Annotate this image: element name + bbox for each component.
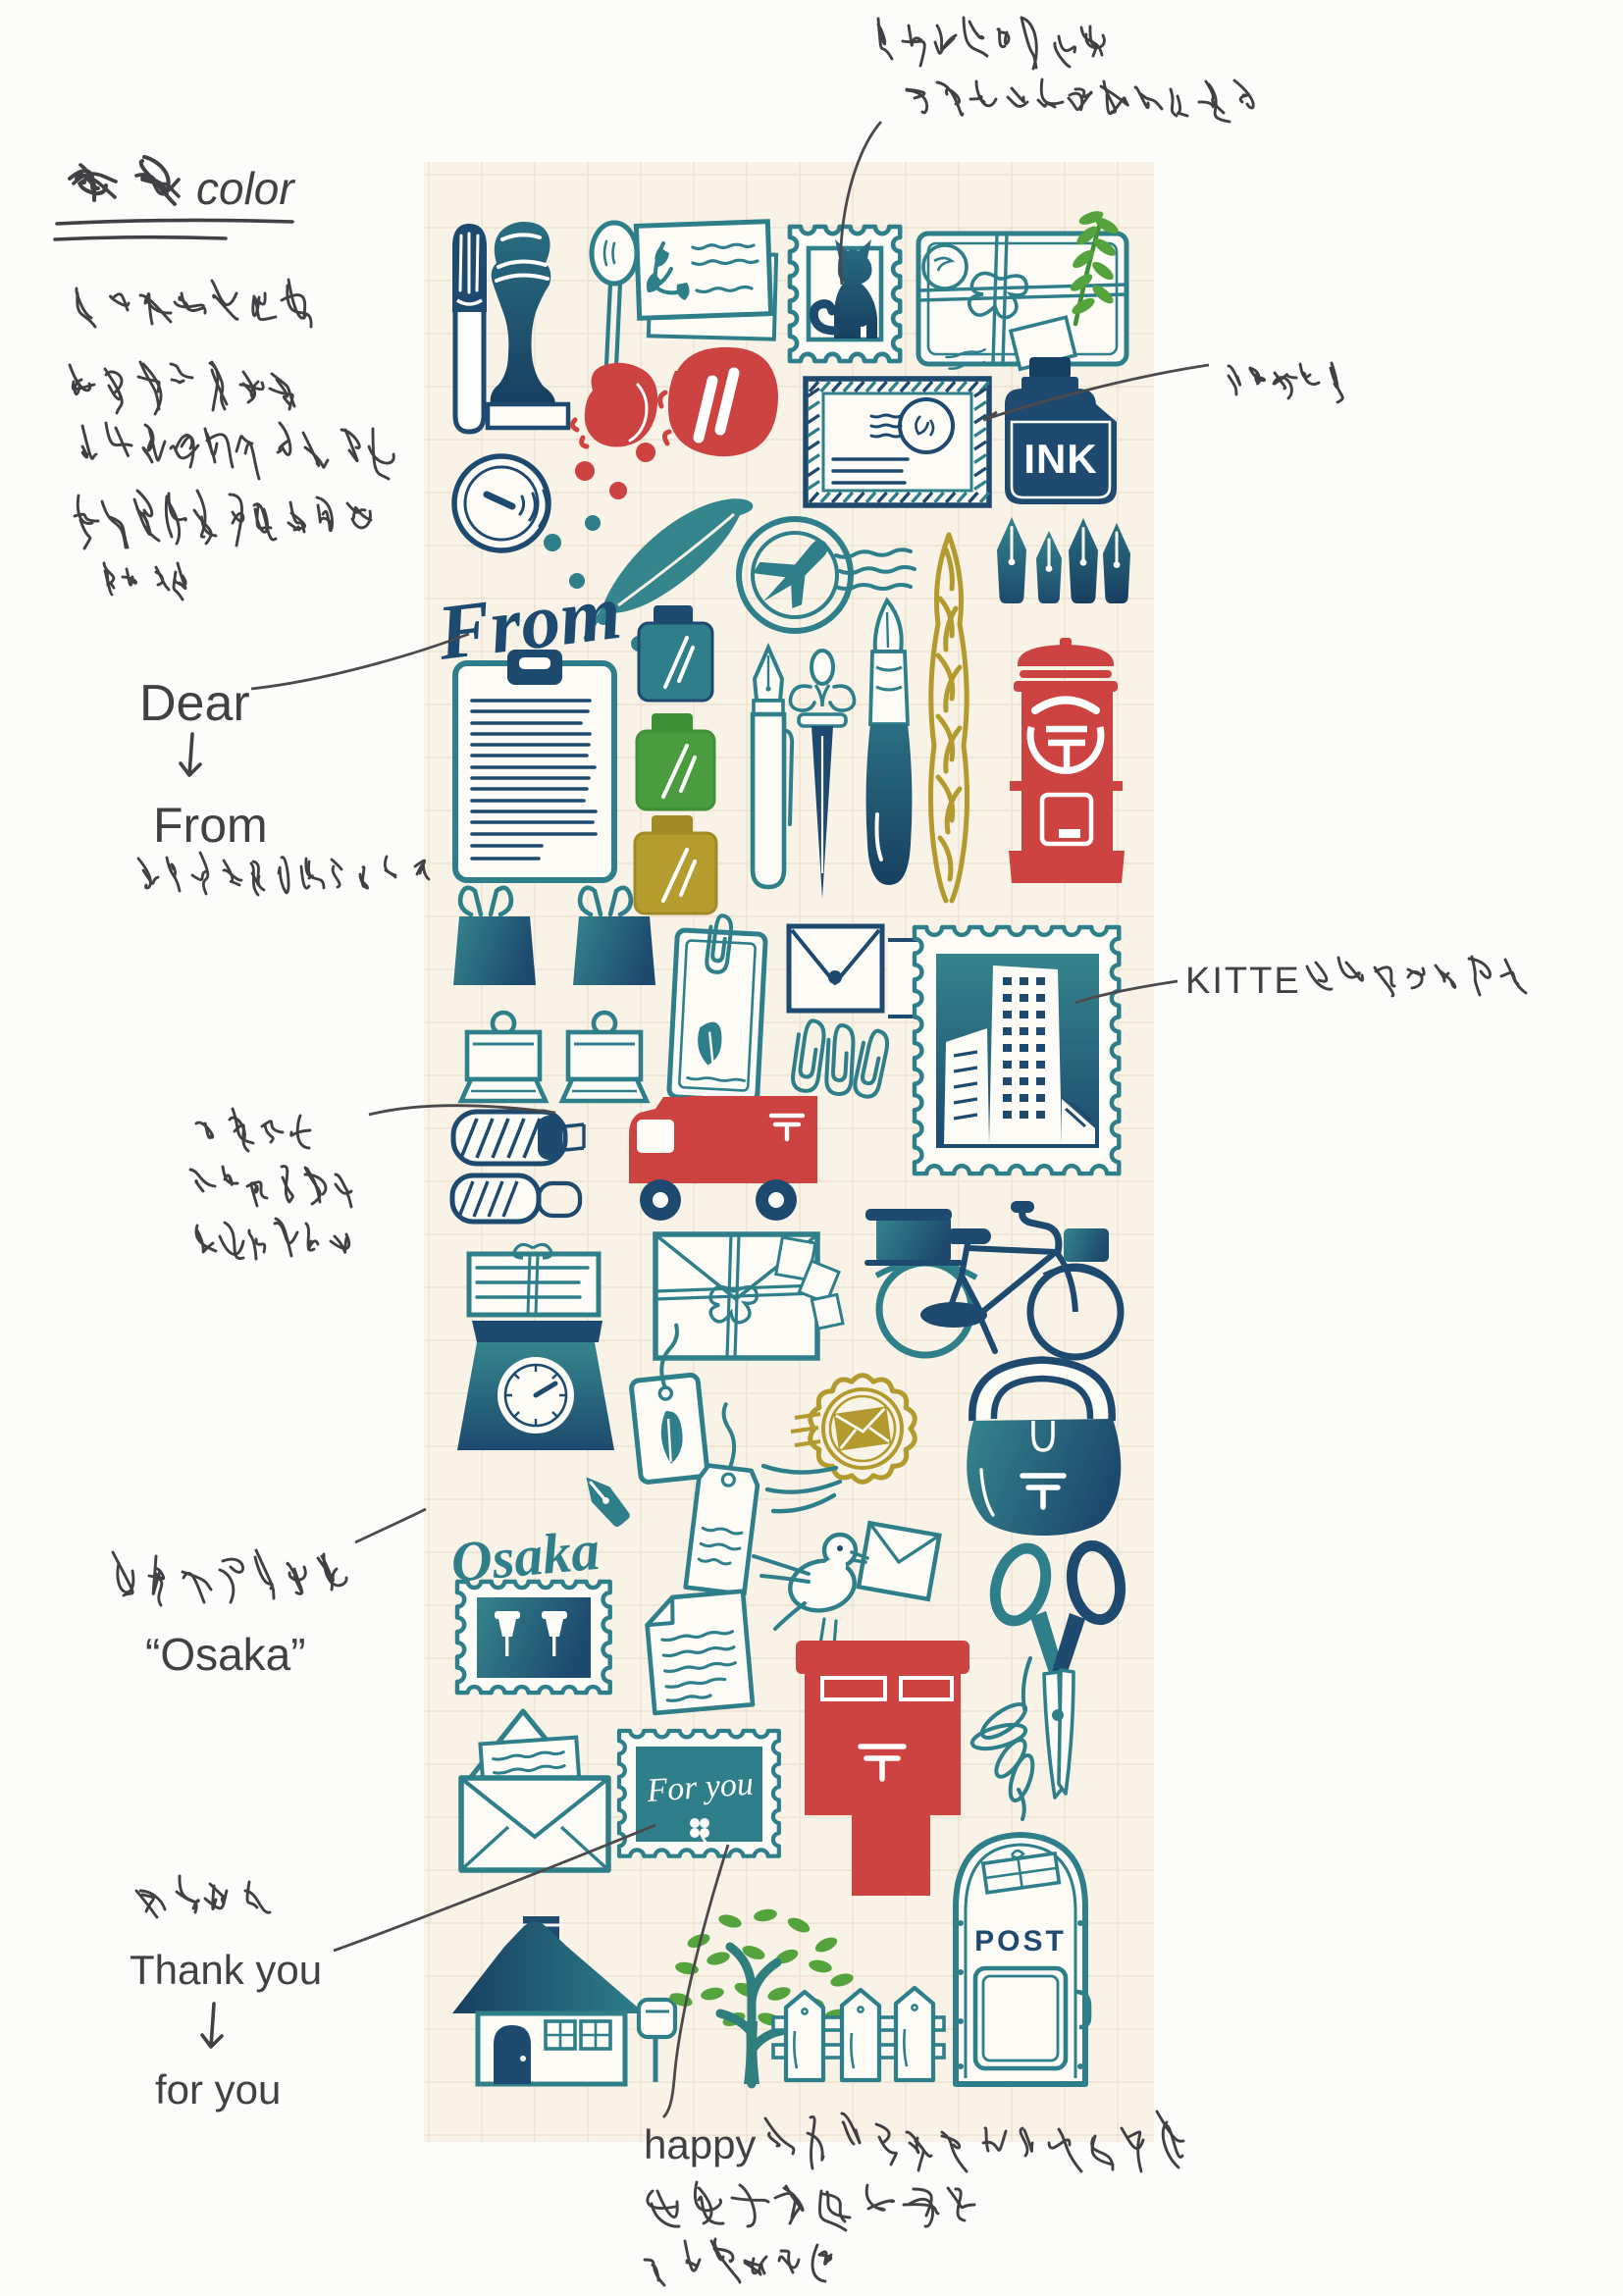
svg-text:INK: INK <box>1023 436 1097 482</box>
svg-text:for you: for you <box>155 2066 281 2113</box>
svg-text:POST: POST <box>974 1925 1067 1957</box>
svg-text:Dear: Dear <box>139 675 250 732</box>
svg-text:From: From <box>153 798 268 853</box>
svg-text:color: color <box>196 163 295 214</box>
svg-text:KITTE: KITTE <box>1185 961 1301 1002</box>
svg-text:happy: happy <box>644 2121 756 2167</box>
svg-text:Thank you: Thank you <box>130 1947 322 1993</box>
svg-text:“Osaka”: “Osaka” <box>145 1629 306 1680</box>
svg-text:For you: For you <box>645 1765 755 1809</box>
